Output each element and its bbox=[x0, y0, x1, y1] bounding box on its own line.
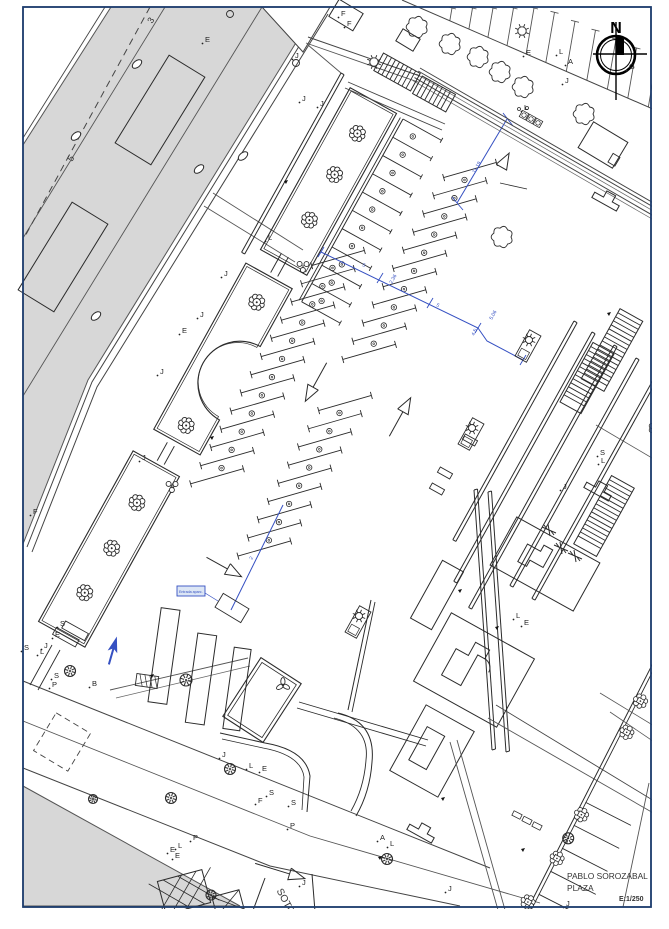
svg-text:S: S bbox=[24, 643, 29, 652]
svg-text:J: J bbox=[224, 269, 228, 278]
svg-text:J: J bbox=[44, 641, 48, 650]
svg-text:F: F bbox=[33, 507, 38, 516]
svg-text:P: P bbox=[290, 821, 295, 830]
svg-text:L: L bbox=[268, 233, 272, 242]
svg-text:A: A bbox=[380, 833, 385, 842]
svg-text:E: E bbox=[55, 630, 60, 639]
svg-text:B: B bbox=[92, 679, 97, 688]
svg-text:S: S bbox=[54, 671, 59, 680]
svg-text:J: J bbox=[295, 51, 299, 60]
svg-text:P: P bbox=[52, 680, 57, 689]
svg-text:S: S bbox=[60, 619, 65, 628]
svg-text:PABLO SOROZABAL: PABLO SOROZABAL bbox=[567, 871, 648, 881]
svg-text:J: J bbox=[222, 750, 226, 759]
svg-text:E: E bbox=[175, 851, 180, 860]
svg-text:E: E bbox=[526, 48, 531, 57]
svg-text:F: F bbox=[341, 9, 346, 18]
svg-text:N: N bbox=[610, 20, 622, 37]
svg-text:L: L bbox=[390, 839, 394, 848]
svg-text:F: F bbox=[258, 796, 263, 805]
svg-text:F: F bbox=[347, 19, 352, 28]
svg-text:PLAZA: PLAZA bbox=[567, 883, 594, 893]
svg-text:E:1/250: E:1/250 bbox=[619, 896, 644, 903]
svg-text:J: J bbox=[200, 310, 204, 319]
svg-text:S: S bbox=[269, 788, 274, 797]
svg-text:J: J bbox=[302, 878, 306, 887]
svg-text:E: E bbox=[205, 35, 210, 44]
svg-text:E: E bbox=[524, 618, 529, 627]
svg-text:J: J bbox=[160, 367, 164, 376]
svg-text:J: J bbox=[142, 453, 146, 462]
svg-text:J: J bbox=[320, 99, 324, 108]
svg-text:L: L bbox=[524, 103, 528, 112]
svg-text:J: J bbox=[563, 482, 567, 491]
svg-text:J: J bbox=[302, 94, 306, 103]
svg-text:L: L bbox=[516, 611, 520, 620]
svg-text:A: A bbox=[568, 57, 573, 66]
svg-text:L: L bbox=[559, 47, 563, 56]
svg-text:J: J bbox=[565, 76, 569, 85]
svg-text:S: S bbox=[291, 798, 296, 807]
svg-text:G: G bbox=[629, 62, 635, 71]
svg-text:J: J bbox=[448, 884, 452, 893]
svg-text:L: L bbox=[178, 841, 182, 850]
svg-text:P: P bbox=[193, 833, 198, 842]
svg-text:E: E bbox=[182, 326, 187, 335]
svg-text:L: L bbox=[601, 456, 605, 465]
svg-text:E: E bbox=[262, 764, 267, 773]
svg-text:Entrada aparc.: Entrada aparc. bbox=[179, 590, 203, 594]
svg-text:L: L bbox=[249, 761, 253, 770]
